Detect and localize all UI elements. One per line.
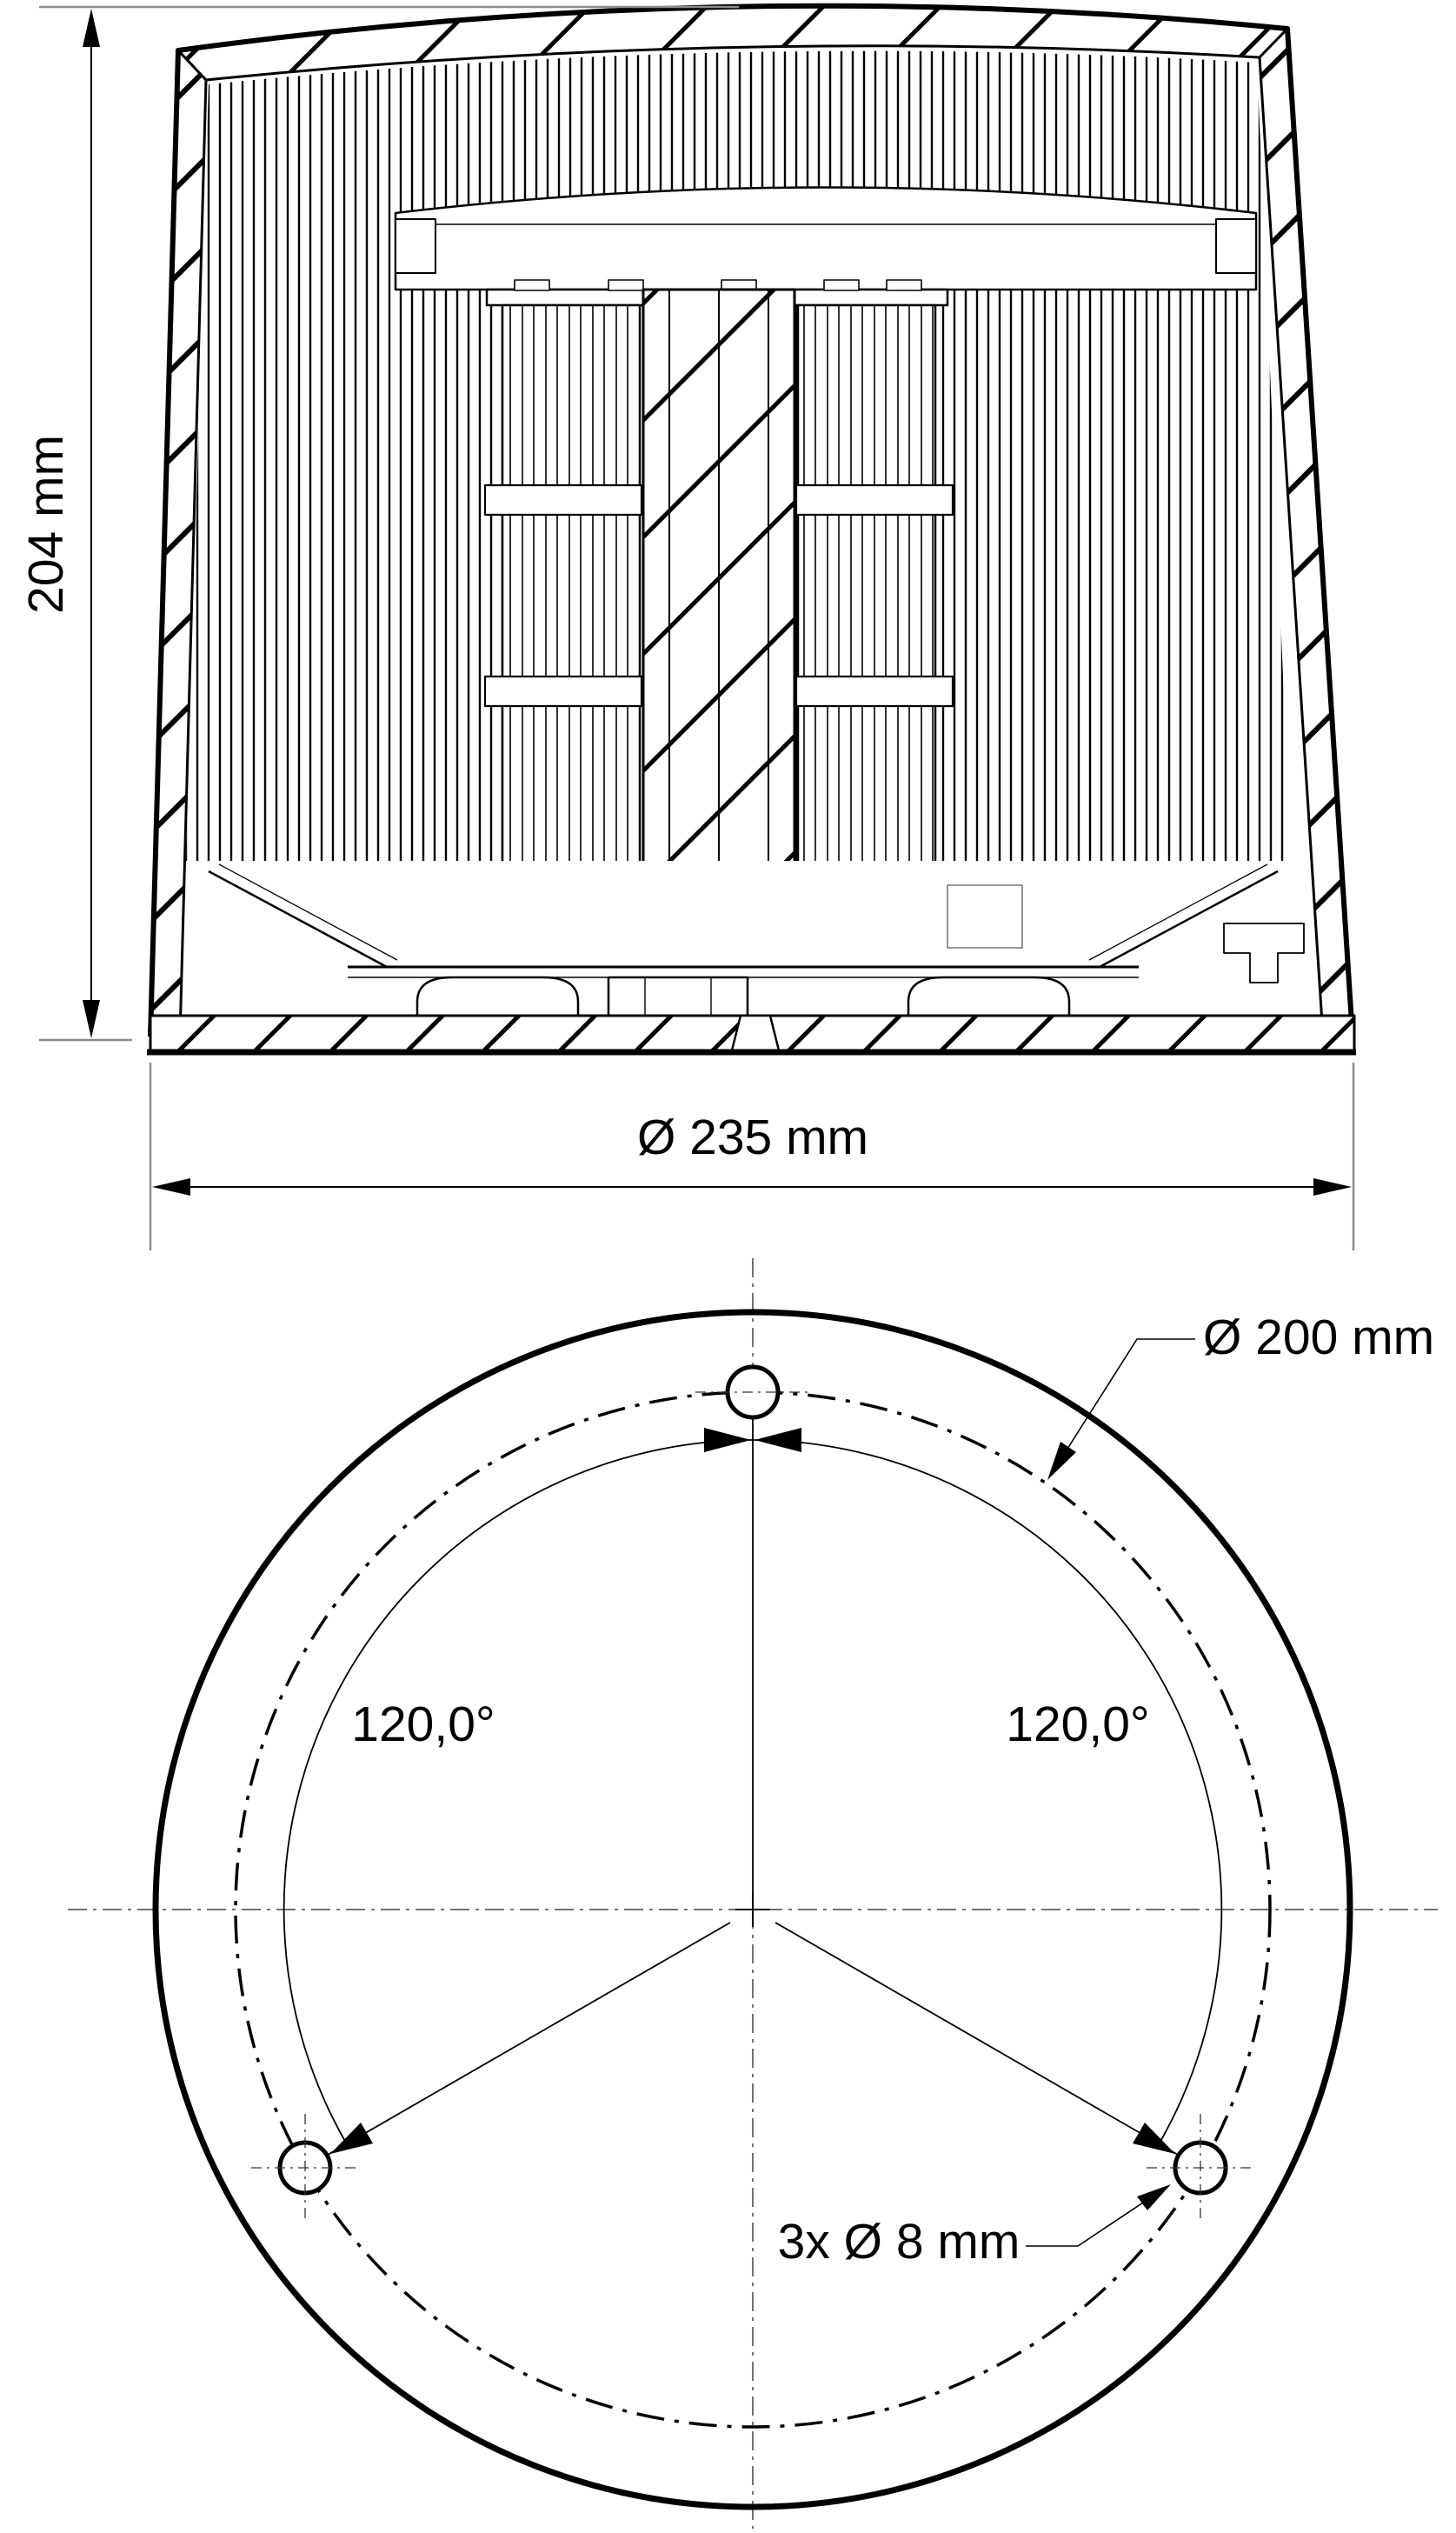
inner-housing-band <box>396 188 1256 290</box>
arc-arrow-top-right <box>755 1428 801 1452</box>
flange-center-notch <box>732 1016 779 1050</box>
angle-arc-right <box>753 1440 1221 2144</box>
housing-step-right <box>1216 219 1256 273</box>
housing-step-left <box>396 219 435 273</box>
holes-callout-label: 3x Ø 8 mm <box>778 2213 1021 2270</box>
height-dimension-label: 204 mm <box>17 435 75 614</box>
arrowhead-up <box>83 9 100 47</box>
bolt-circle-label: Ø 200 mm <box>1203 1309 1434 1366</box>
diameter-dimension-label: Ø 235 mm <box>637 1109 868 1166</box>
arrowhead-right <box>1313 1178 1352 1196</box>
drawing-linework <box>0 0 1456 2533</box>
bottom-view <box>68 1258 1438 2529</box>
drawing-canvas: 204 mm Ø 235 mm Ø 200 mm 120,0° 120,0° 3… <box>0 0 1456 2533</box>
leader-arrow-holes <box>1137 2184 1171 2210</box>
led-panel-right <box>798 305 935 874</box>
side-section-view <box>39 6 1356 1250</box>
holes-leader <box>1026 2184 1171 2246</box>
radial-line-bottom-left <box>305 1923 730 2168</box>
angle-arc-left <box>284 1440 753 2144</box>
angle-label-right: 120,0° <box>1006 1696 1149 1753</box>
led-panel-left <box>502 305 640 874</box>
angle-label-left: 120,0° <box>351 1696 495 1753</box>
bolt-circle-leader <box>1047 1339 1195 1480</box>
radial-line-bottom-right <box>775 1923 1200 2168</box>
arc-arrow-top-left <box>704 1428 751 1452</box>
arrowhead-down <box>83 1000 100 1038</box>
arrowhead-left <box>152 1178 190 1196</box>
leader-arrow-bolt-circle <box>1047 1442 1076 1480</box>
